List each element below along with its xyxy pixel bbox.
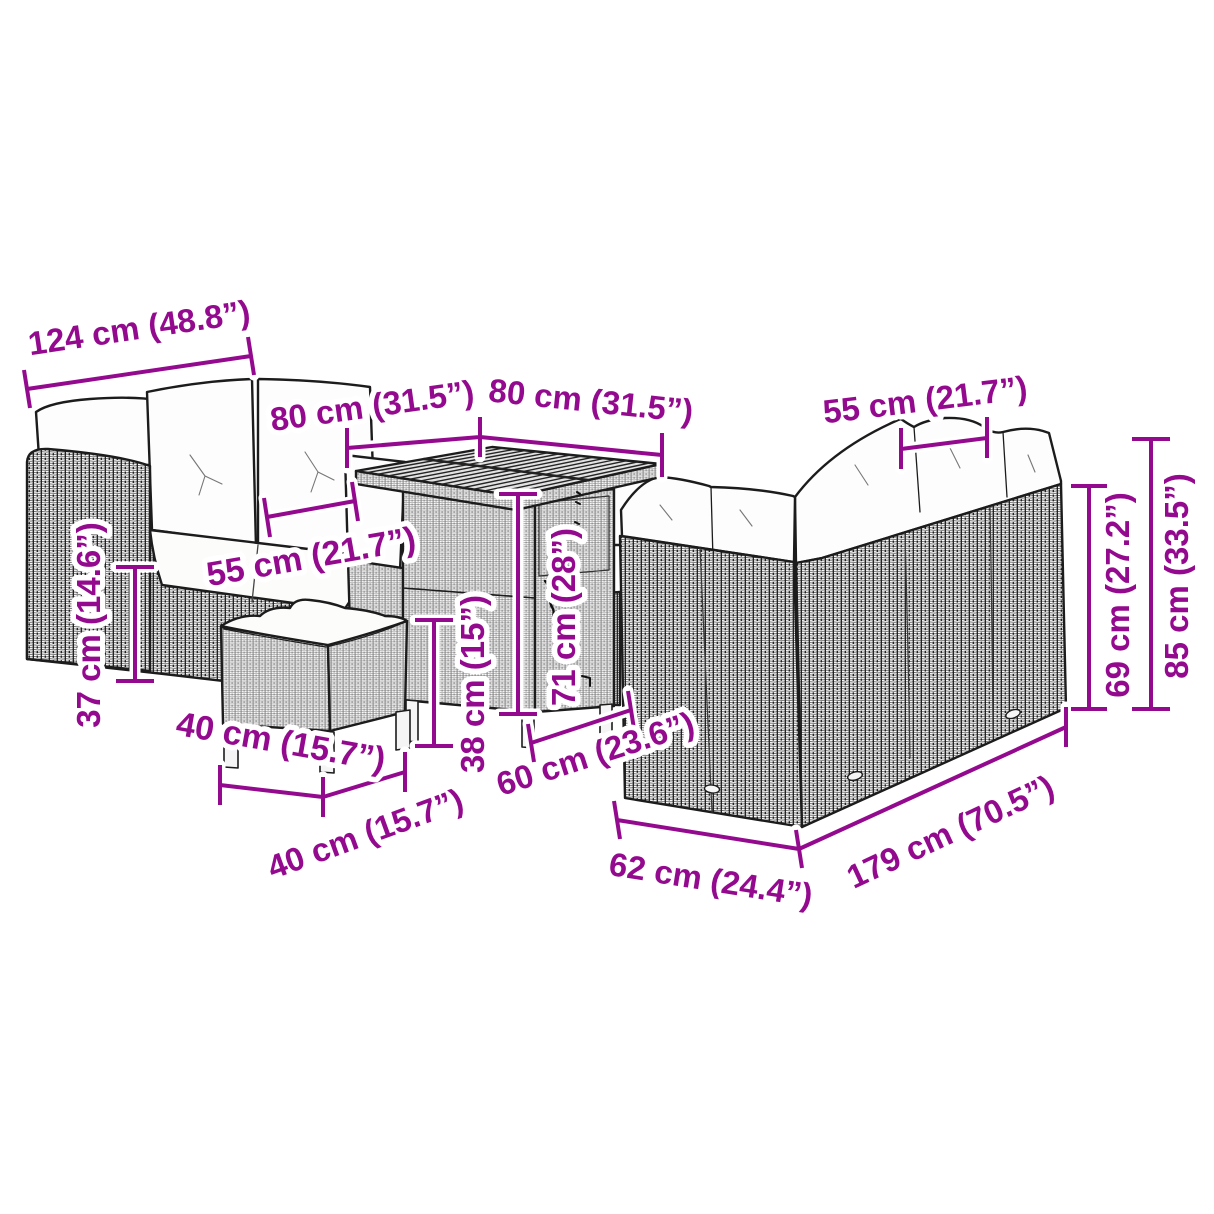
svg-text:38 cm (15”): 38 cm (15”) — [454, 595, 491, 773]
svg-text:37 cm (14.6”): 37 cm (14.6”) — [70, 522, 107, 727]
svg-text:71 cm (28”): 71 cm (28”) — [545, 528, 582, 706]
svg-text:69 cm (27.2”): 69 cm (27.2”) — [1099, 492, 1136, 697]
svg-text:85 cm (33.5”): 85 cm (33.5”) — [1158, 473, 1195, 678]
